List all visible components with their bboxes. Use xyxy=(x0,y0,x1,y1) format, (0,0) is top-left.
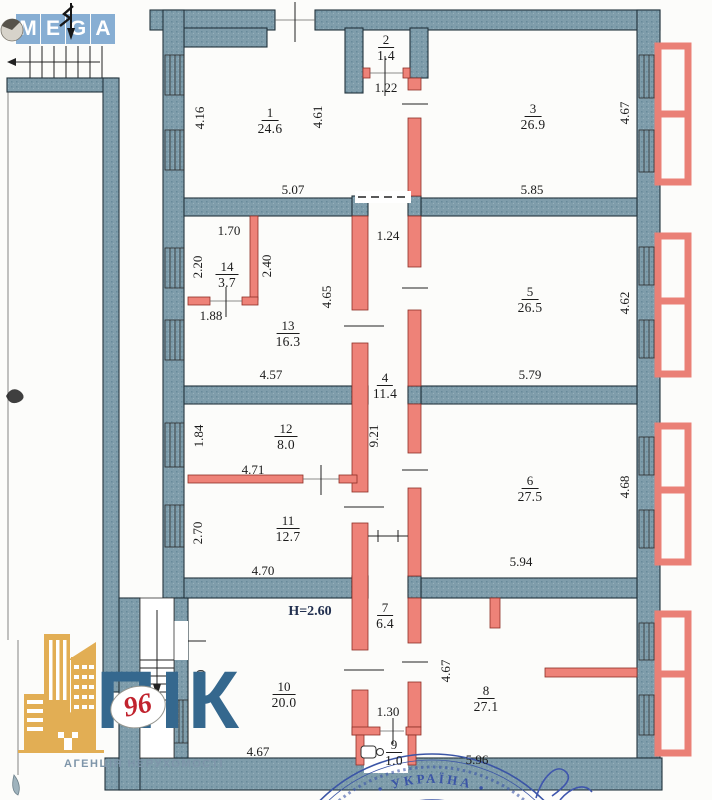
pik-badge-number: 96 xyxy=(121,687,155,723)
building-icon xyxy=(16,632,108,762)
ceiling-height-note: H=2.60 xyxy=(288,604,331,620)
door-opening-marks xyxy=(166,2,428,670)
logo-artifacts xyxy=(0,0,110,50)
pik-subtitle: АГЕНЦІЯ НЕРУХОМОСТІ xyxy=(64,758,224,770)
staircase-top-left xyxy=(7,46,102,78)
balconies xyxy=(658,46,688,753)
pik-logo: ПІК 96 АГЕНЦІЯ НЕРУХОМОСТІ xyxy=(0,630,280,800)
floor-plan-page: .w{fill:url(#wp);stroke:#22333c;stroke-w… xyxy=(0,0,712,800)
